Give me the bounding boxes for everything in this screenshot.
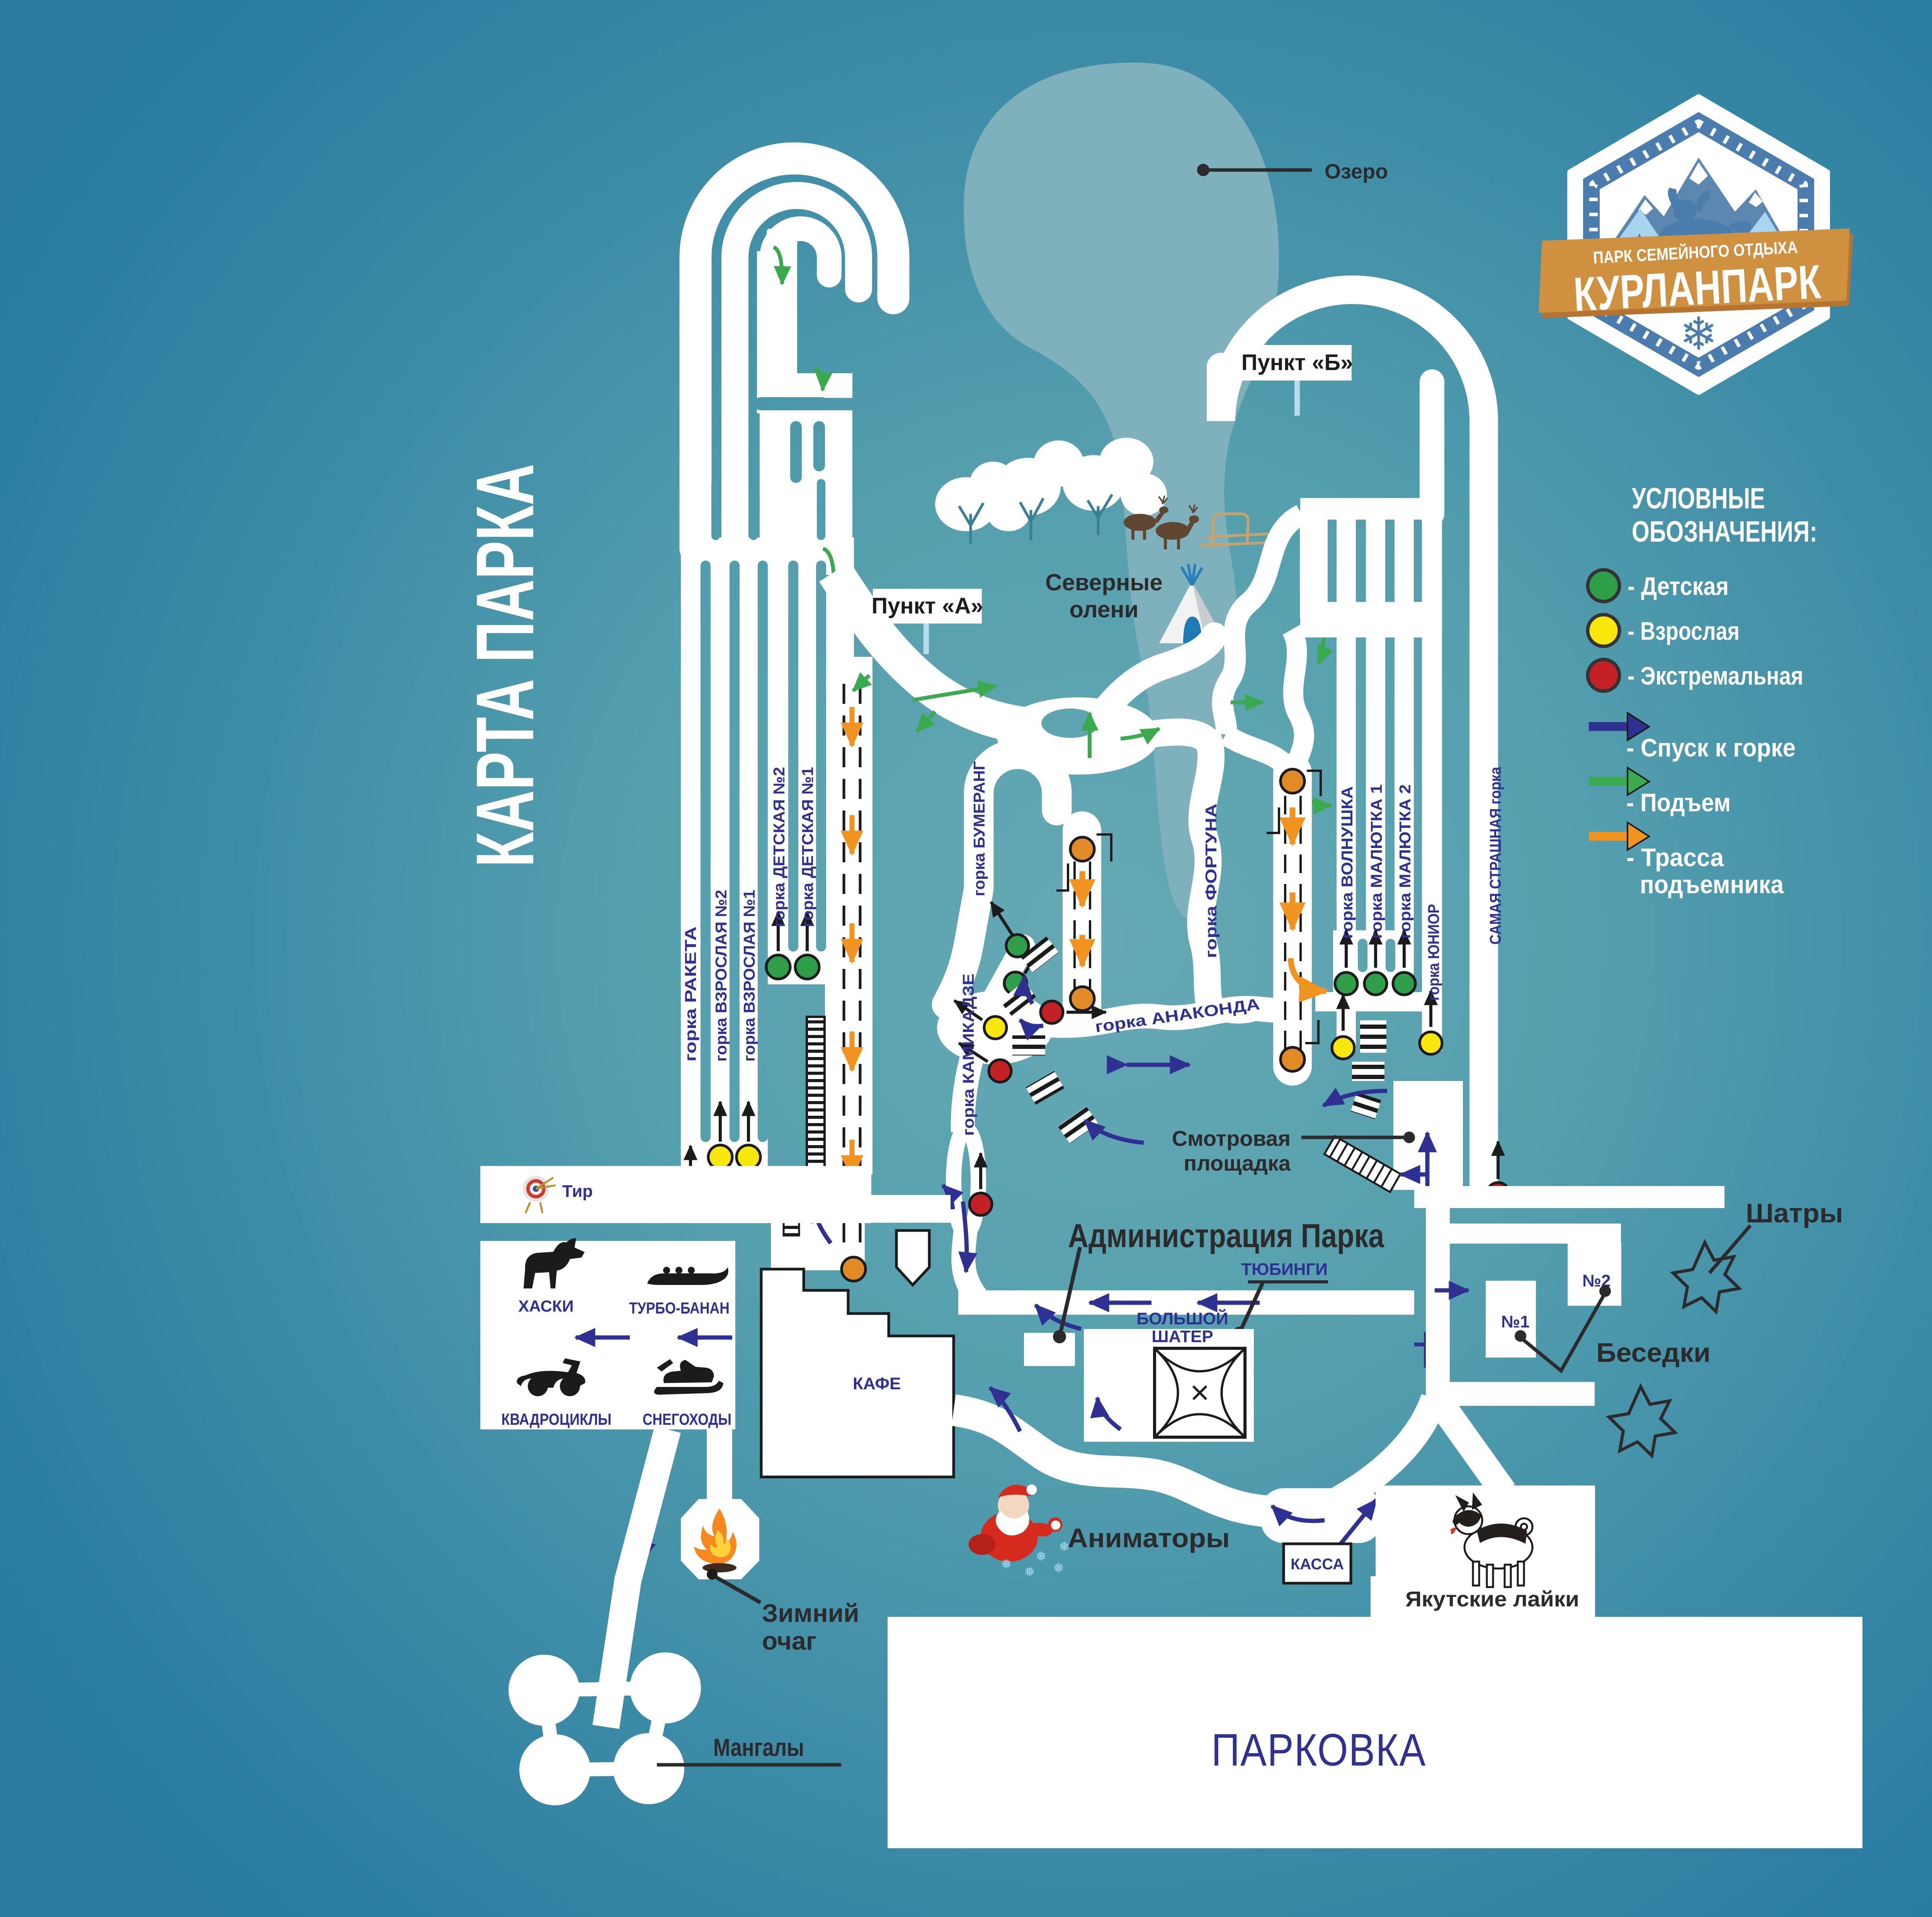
- svg-text:горка МАЛЮТКА 1: горка МАЛЮТКА 1: [1367, 784, 1385, 939]
- svg-text:ТУРБО-БАНАН: ТУРБО-БАНАН: [629, 1299, 730, 1317]
- svg-text:- Подъем: - Подъем: [1626, 788, 1731, 817]
- svg-text:КАРТА ПАРКА: КАРТА ПАРКА: [459, 464, 551, 867]
- svg-text:горка БУМЕРАНГ: горка БУМЕРАНГ: [970, 761, 988, 896]
- svg-text:❅: ❅: [1036, 1549, 1047, 1564]
- svg-text:горка ДЕТСКАЯ №1: горка ДЕТСКАЯ №1: [799, 767, 816, 927]
- svg-text:- Трасса: - Трасса: [1626, 843, 1724, 872]
- svg-text:горка РАКЕТА: горка РАКЕТА: [682, 926, 699, 1062]
- svg-text:- Спуск к горке: - Спуск к горке: [1626, 733, 1796, 762]
- svg-text:СНЕГОХОДЫ: СНЕГОХОДЫ: [643, 1410, 731, 1428]
- svg-text:горка ВЗРОСЛАЯ №1: горка ВЗРОСЛАЯ №1: [740, 890, 758, 1062]
- svg-text:горка ВЗРОСЛАЯ №2: горка ВЗРОСЛАЯ №2: [712, 890, 730, 1062]
- svg-text:горка ДЕТСКАЯ №2: горка ДЕТСКАЯ №2: [770, 767, 788, 927]
- svg-text:площадка: площадка: [1184, 1151, 1291, 1175]
- svg-text:Тир: Тир: [562, 1182, 593, 1201]
- svg-text:ШАТЕР: ШАТЕР: [1151, 1327, 1213, 1346]
- svg-text:❅: ❅: [1024, 1565, 1035, 1579]
- svg-text:КАФЕ: КАФЕ: [853, 1374, 901, 1393]
- svg-text:Озеро: Озеро: [1325, 160, 1388, 183]
- svg-text:Беседки: Беседки: [1596, 1337, 1711, 1368]
- svg-text:УСЛОВНЫЕ: УСЛОВНЫЕ: [1632, 482, 1765, 515]
- svg-text:САМАЯ СТРАШНАЯ горка: САМАЯ СТРАШНАЯ горка: [1486, 766, 1504, 945]
- svg-text:ХАСКИ: ХАСКИ: [518, 1297, 573, 1315]
- svg-text:Зимний: Зимний: [762, 1599, 859, 1627]
- svg-text:Пункт «Б»: Пункт «Б»: [1242, 350, 1353, 375]
- svg-text:Северные: Северные: [1045, 569, 1163, 595]
- svg-text:Пункт «А»: Пункт «А»: [872, 593, 983, 619]
- svg-text:горка ВОЛНУШКА: горка ВОЛНУШКА: [1338, 786, 1356, 939]
- svg-text:БОЛЬШОЙ: БОЛЬШОЙ: [1136, 1309, 1228, 1328]
- svg-text:- Взрослая: - Взрослая: [1628, 617, 1740, 645]
- svg-text:- Детская: - Детская: [1628, 572, 1729, 600]
- svg-text:❅: ❅: [1053, 1561, 1064, 1575]
- svg-text:Шатры: Шатры: [1746, 1198, 1843, 1228]
- svg-text:КВАДРОЦИКЛЫ: КВАДРОЦИКЛЫ: [502, 1410, 612, 1428]
- svg-text:Смотровая: Смотровая: [1172, 1126, 1291, 1151]
- svg-text:Аниматоры: Аниматоры: [1068, 1523, 1230, 1553]
- svg-text:❄: ❄: [1680, 309, 1718, 360]
- svg-text:горка ФОРТУНА: горка ФОРТУНА: [1202, 804, 1220, 958]
- svg-text:очаг: очаг: [762, 1626, 816, 1655]
- svg-text:горка ЮНИОР: горка ЮНИОР: [1425, 904, 1442, 1001]
- svg-text:ОБОЗНАЧЕНИЯ:: ОБОЗНАЧЕНИЯ:: [1632, 515, 1817, 548]
- svg-text:КАССА: КАССА: [1291, 1556, 1344, 1573]
- svg-text:Якутские лайки: Якутские лайки: [1405, 1587, 1579, 1611]
- svg-text:горка МАЛЮТКА 2: горка МАЛЮТКА 2: [1396, 784, 1414, 939]
- svg-text:Мангалы: Мангалы: [713, 1733, 804, 1761]
- svg-text:ТЮБИНГИ: ТЮБИНГИ: [1241, 1260, 1328, 1279]
- svg-text:- Экстремальная: - Экстремальная: [1628, 661, 1803, 690]
- svg-text:ПАРКОВКА: ПАРКОВКА: [1211, 1725, 1426, 1776]
- svg-text:❅: ❅: [1001, 1557, 1012, 1572]
- svg-text:горка КАМИКАДЗЕ: горка КАМИКАДЗЕ: [959, 974, 977, 1136]
- svg-text:№1: №1: [1501, 1312, 1530, 1331]
- svg-text:олени: олени: [1070, 597, 1139, 622]
- svg-text:подъемника: подъемника: [1640, 870, 1784, 899]
- svg-text:Администрация Парка: Администрация Парка: [1068, 1217, 1384, 1254]
